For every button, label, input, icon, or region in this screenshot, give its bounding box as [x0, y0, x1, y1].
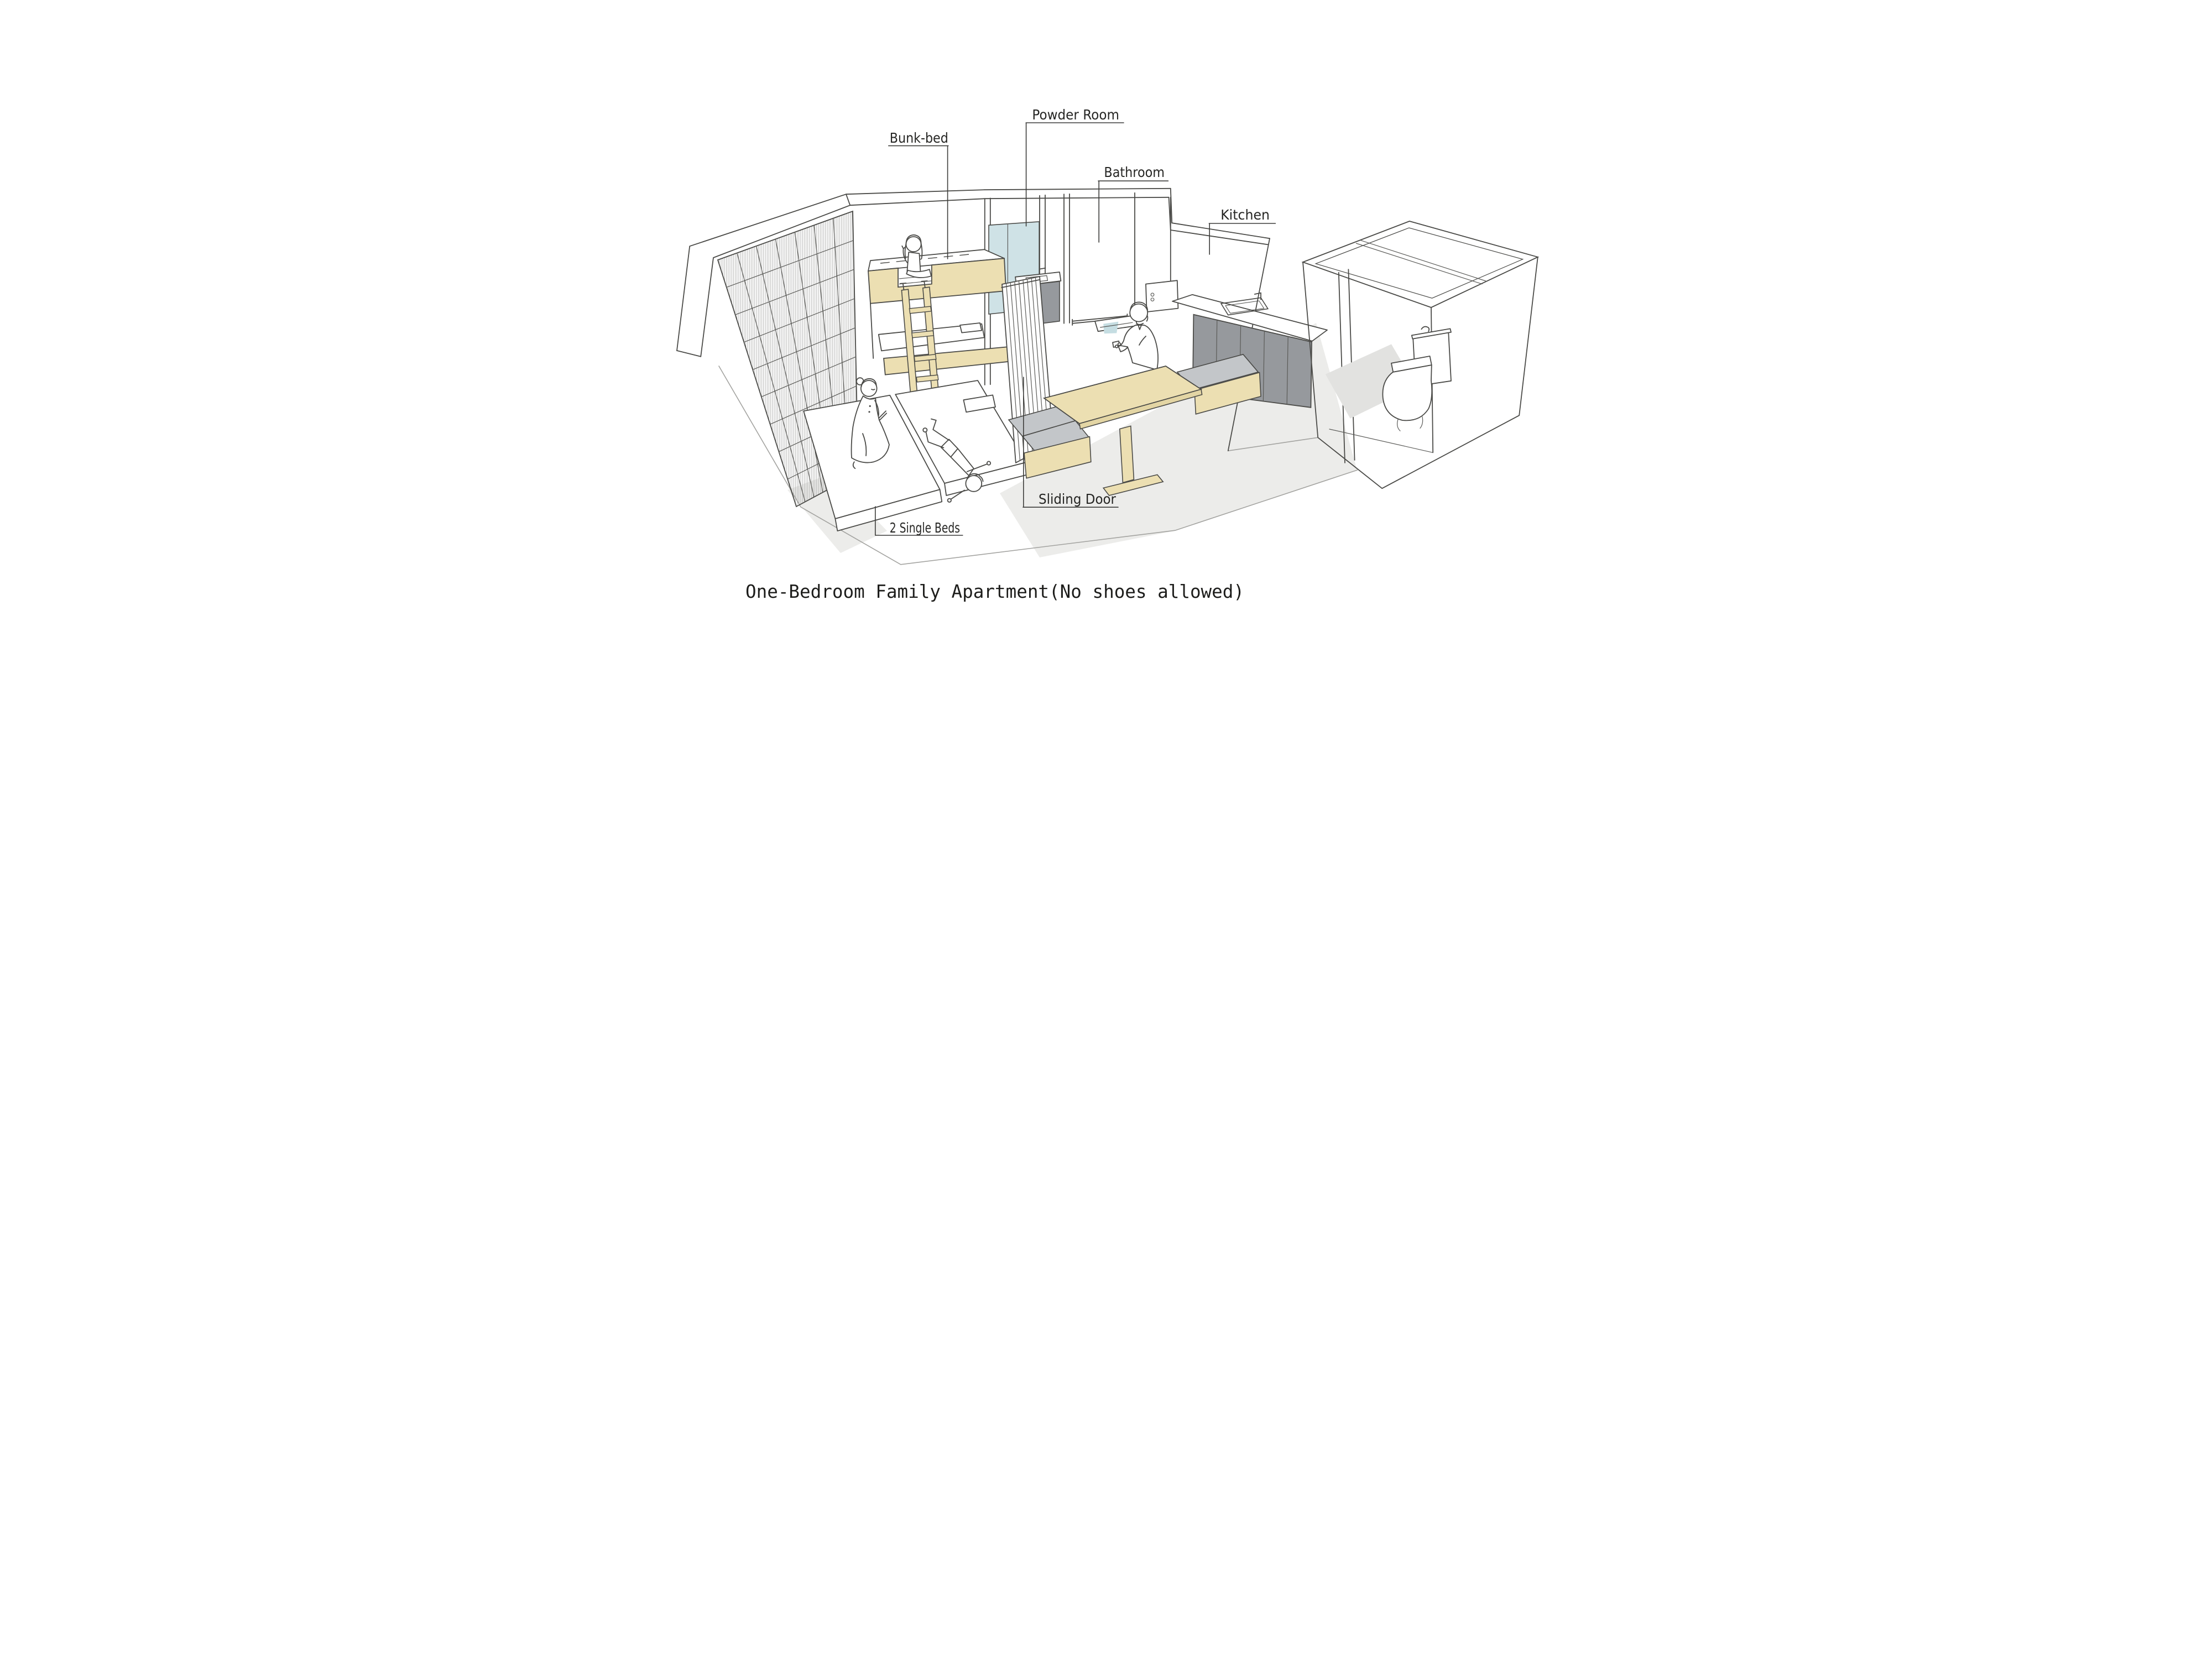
leader-kitchen: [1209, 223, 1275, 254]
label-bunk-bed: Bunk-bed: [890, 130, 948, 146]
toilet: [1383, 327, 1451, 431]
label-kitchen: Kitchen: [1220, 207, 1270, 223]
label-powder-room: Powder Room: [1032, 107, 1119, 123]
lower-bunk-panel: [884, 346, 1014, 374]
page-title: One-Bedroom Family Apartment(No shoes al…: [745, 581, 1244, 602]
leader-bathroom: [1098, 181, 1168, 242]
bathroom: [1072, 280, 1178, 333]
illustration-page: Bunk-bed Powder Room Bathroom Kitchen Sl…: [664, 0, 1548, 664]
apartment-illustration: Bunk-bed Powder Room Bathroom Kitchen Sl…: [664, 0, 1548, 664]
wall-cabinet: [1146, 280, 1178, 312]
pillow: [960, 323, 982, 333]
label-bathroom: Bathroom: [1104, 164, 1165, 180]
label-sliding-door: Sliding Door: [1039, 491, 1117, 507]
label-single-beds: 2 Single Beds: [890, 520, 960, 536]
